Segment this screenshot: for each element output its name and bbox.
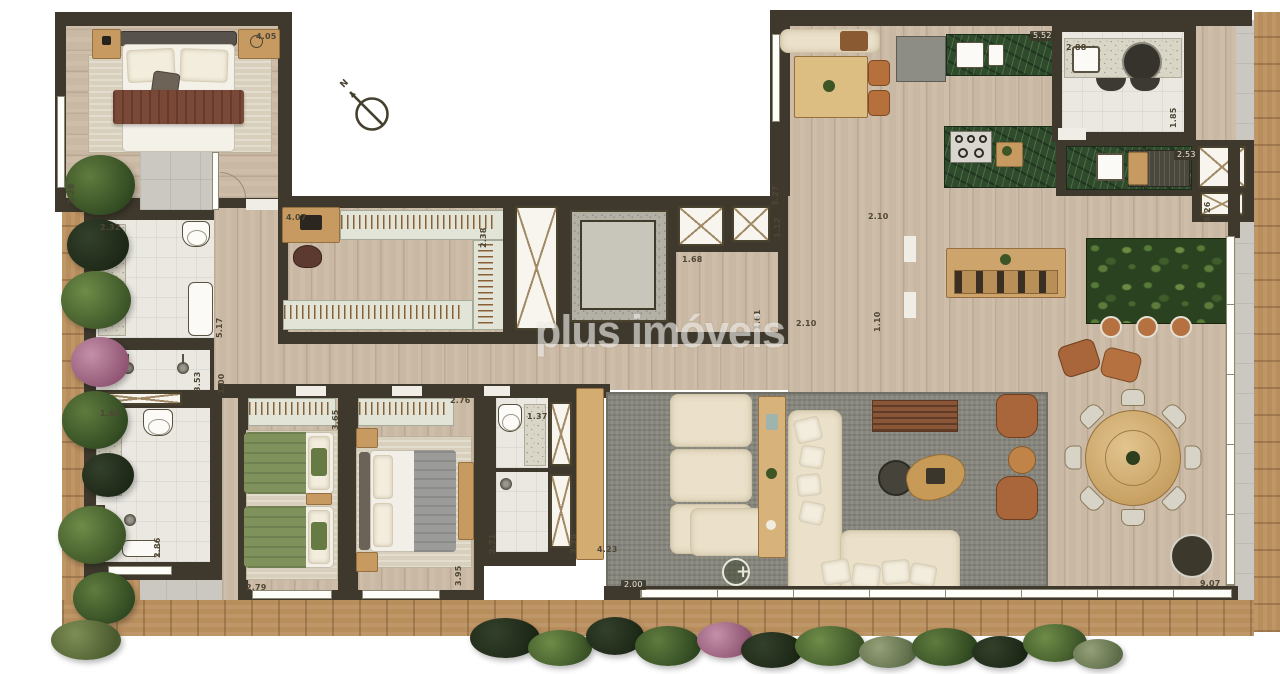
dimension-label: 8.26 [1204, 201, 1212, 222]
dimension-label: 1.37 [527, 413, 548, 421]
door-gap [484, 386, 510, 396]
dimension-label: 1.10 [874, 311, 882, 332]
dimension-label: 3.38 [570, 533, 578, 554]
nook-window [772, 34, 780, 122]
door-gap [904, 292, 916, 318]
dimension-label: 2.76 [450, 397, 471, 405]
door-gap [392, 386, 422, 396]
living-bottom-glazing [640, 589, 1232, 598]
dimension-label: 2.71 [489, 533, 497, 554]
dimension-label: 1.68 [682, 256, 703, 264]
dimension-label: 3.95 [455, 565, 463, 586]
dimension-label: 2.88 [1066, 44, 1087, 52]
dimension-label: 3.28 [68, 183, 76, 204]
pocket-window [212, 152, 219, 210]
dimension-label: 2.10 [868, 213, 889, 221]
dimension-label: 1.12 [774, 217, 782, 238]
floor-plan: + [0, 0, 1280, 674]
dimension-label: 2.32 [100, 224, 121, 232]
dimension-label: 3.53 [194, 371, 202, 392]
dimension-label: 2.10 [796, 320, 817, 328]
dimension-label: 1.64 [100, 410, 121, 418]
dimension-label: 2.79 [246, 584, 267, 592]
dimension-label: 5.17 [216, 317, 224, 338]
bedroom3-window [362, 590, 440, 599]
dimension-label: 9.07 [1200, 580, 1221, 588]
dimension-label: 3.27 [772, 185, 780, 206]
dimension-label: 4.23 [597, 546, 618, 554]
dimension-label: 3.65 [332, 409, 340, 430]
dimension-label: 4.07 [286, 214, 307, 222]
dimension-label: 2.53 [1174, 150, 1199, 160]
dimension-label: 4.05 [256, 33, 277, 41]
dimension-label: 2.86 [154, 537, 162, 558]
garden-plus-icon: + [722, 558, 750, 586]
dimension-label: 1.00 [218, 373, 226, 394]
dimension-label: 2.38 [480, 227, 488, 248]
master-door-gap [246, 199, 278, 210]
dimension-label: 5.52 [1030, 31, 1055, 41]
door-gap [296, 386, 326, 396]
watermark: plus imóveis [526, 306, 795, 358]
door-gap [904, 236, 916, 262]
living-right-glazing [1226, 236, 1235, 586]
centerpiece-plant-icon [1126, 451, 1140, 465]
master-terrace-pocket [140, 152, 212, 210]
dimension-label: 2.00 [621, 580, 646, 590]
dimension-label: 1.85 [1170, 107, 1178, 128]
laundry-door-gap [1058, 128, 1086, 140]
